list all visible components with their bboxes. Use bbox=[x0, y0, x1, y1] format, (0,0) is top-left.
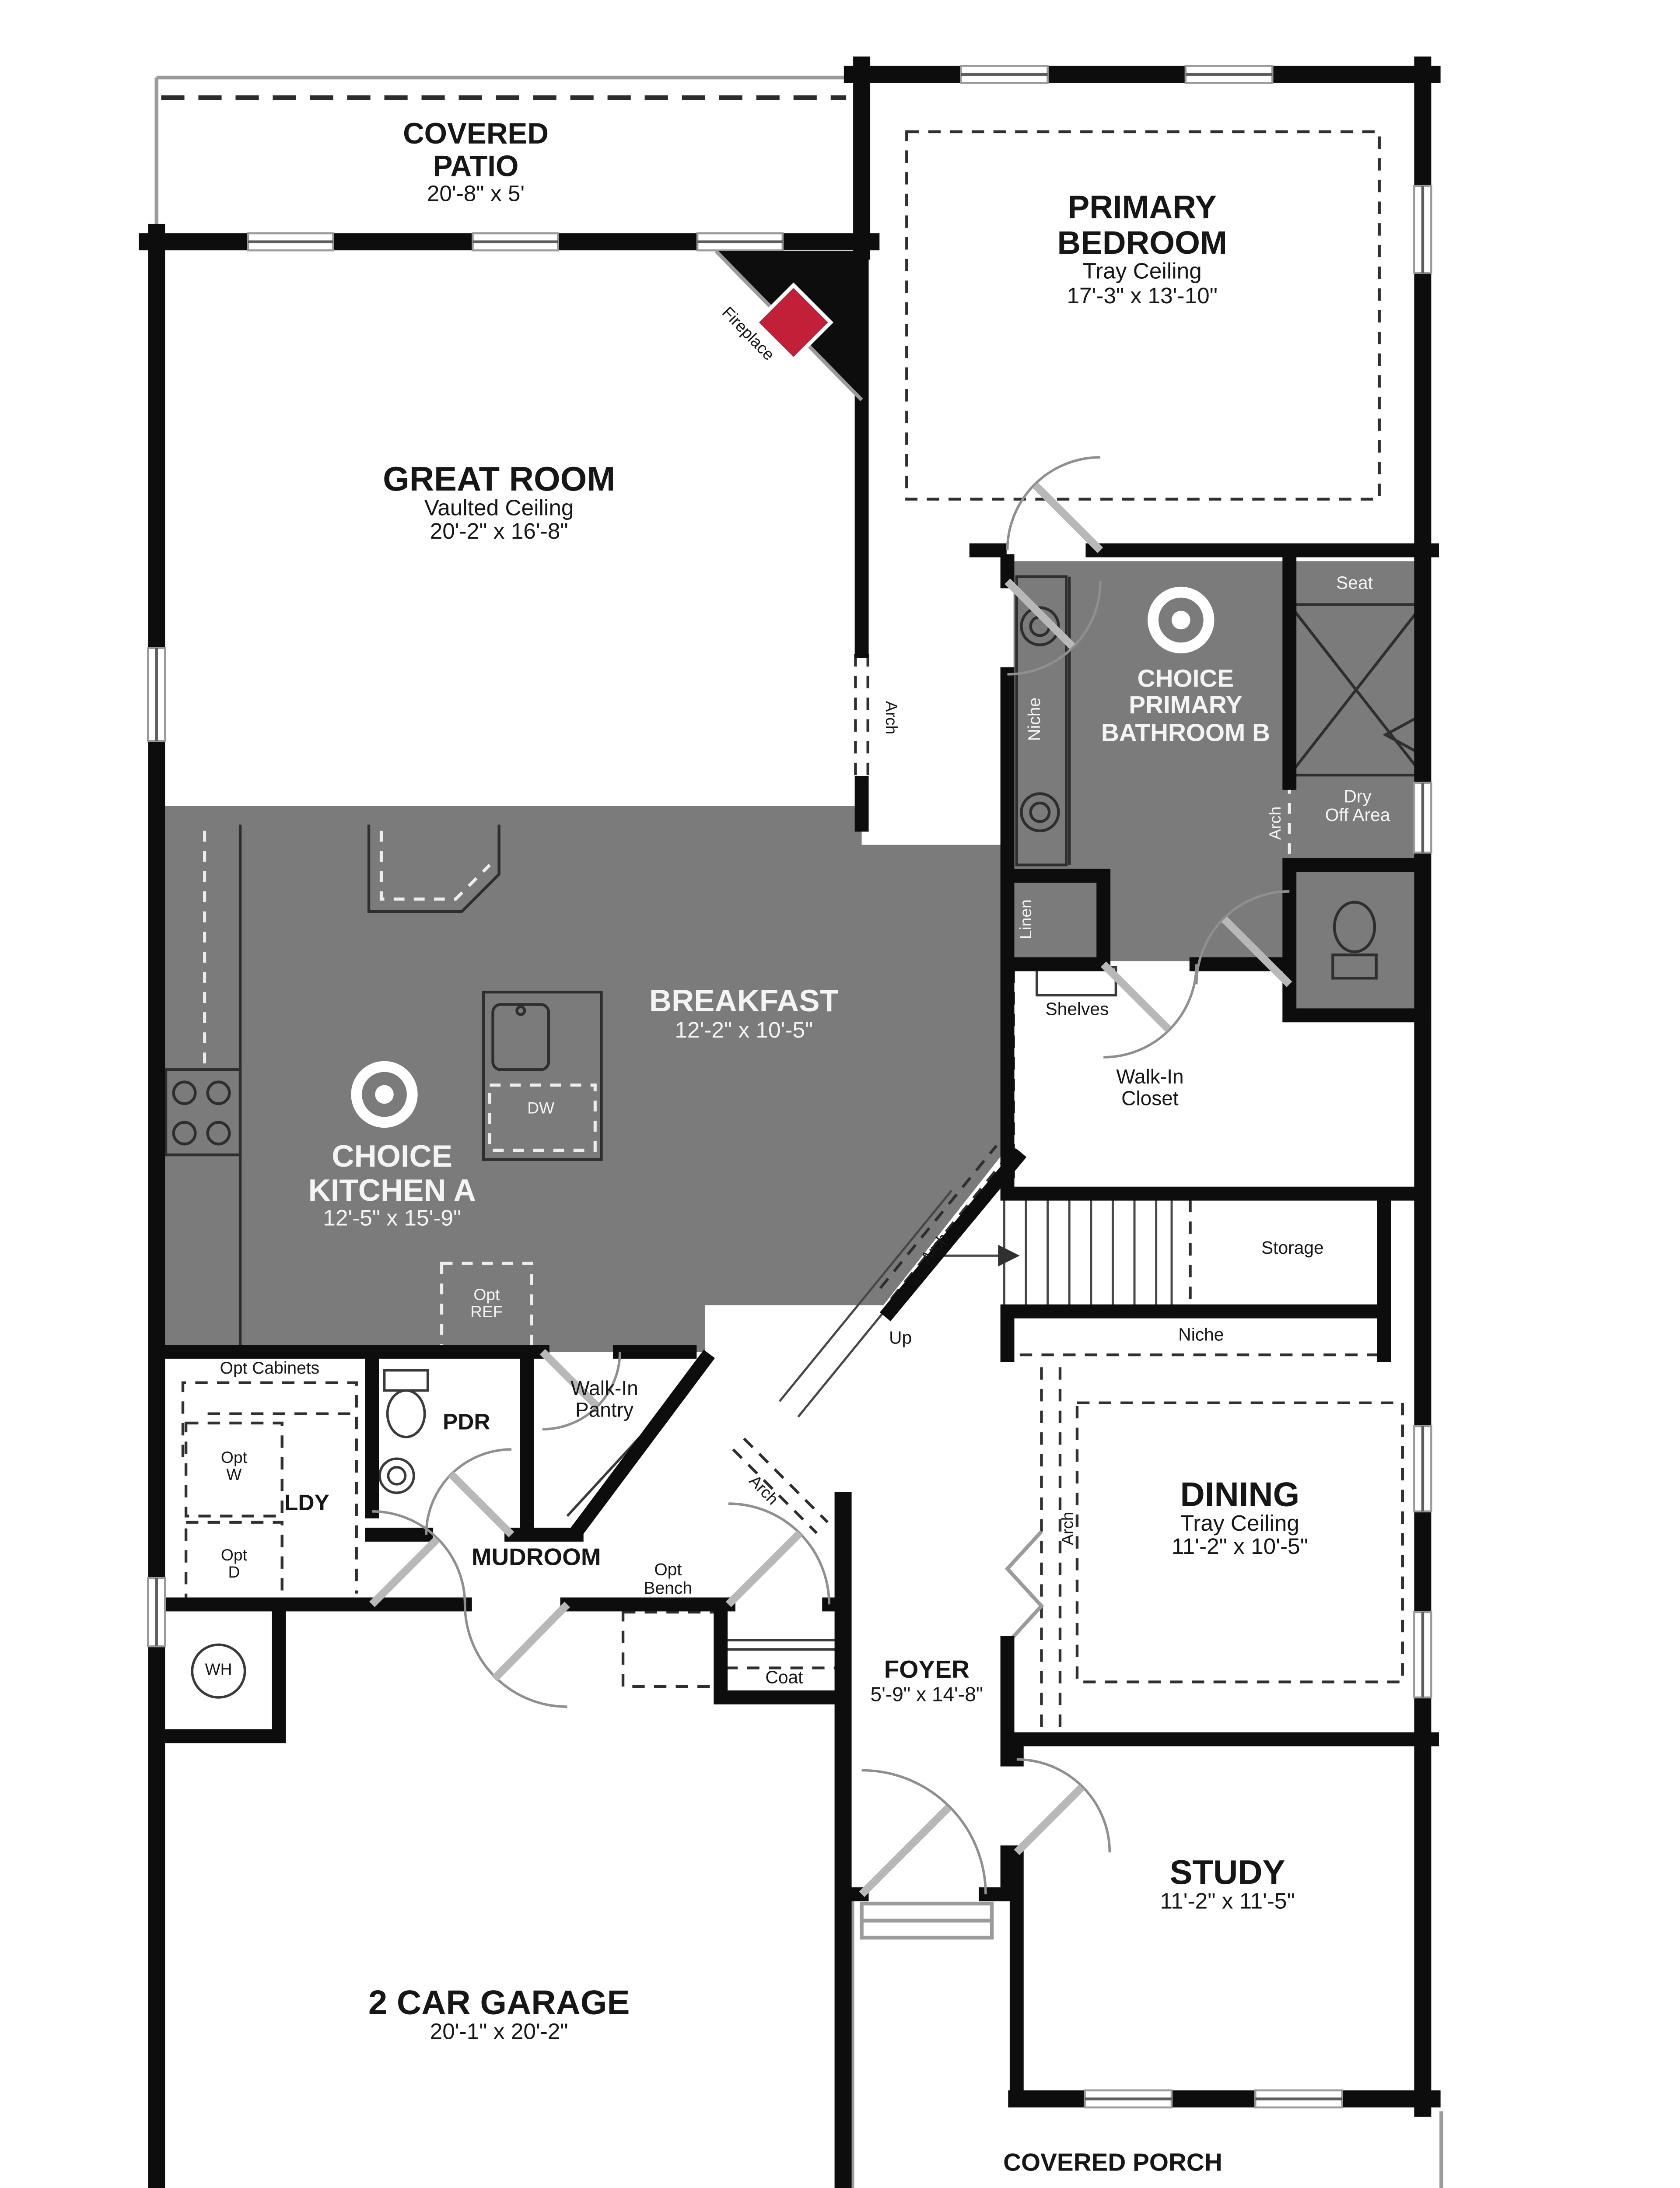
room-label-great-room: GREAT ROOM Vaulted Ceiling 20'-2" x 16'-… bbox=[383, 461, 615, 547]
arch-label-bath: Arch bbox=[1268, 806, 1286, 840]
room-label-garage: 2 CAR GARAGE 20'-1" x 20'-2" bbox=[368, 1985, 630, 2046]
coat-shelf bbox=[725, 1640, 840, 1649]
dining-arch-opening bbox=[1041, 1367, 1060, 1733]
dishwasher-label: DW bbox=[527, 1101, 554, 1119]
hall-arch-opening bbox=[855, 654, 868, 780]
room-label-foyer: FOYER 5'-9" x 14'-8" bbox=[871, 1658, 983, 1706]
room-label-study: STUDY 11'-2" x 11'-5" bbox=[1160, 1855, 1295, 1916]
arch-label-dining: Arch bbox=[1060, 1512, 1078, 1545]
porch-outline bbox=[852, 1894, 1441, 2188]
opt-bench-label: OptBench bbox=[644, 1563, 693, 1599]
opt-cabinets-label: Opt Cabinets bbox=[220, 1361, 319, 1379]
seat-label: Seat bbox=[1336, 575, 1373, 594]
pedestal-sink-icon bbox=[380, 1459, 414, 1493]
room-label-mudroom: MUDROOM bbox=[472, 1546, 601, 1572]
shelves-box bbox=[1037, 967, 1116, 995]
toilet-tank bbox=[385, 1370, 428, 1390]
pedestal-sink-icon bbox=[388, 1467, 405, 1484]
niche-label-dining: Niche bbox=[1178, 1327, 1224, 1346]
room-label-kitchen: CHOICE KITCHEN A 12'-5" x 15'-9" bbox=[308, 1142, 476, 1233]
room-label-walk-in-pantry: Walk-In Pantry bbox=[570, 1378, 638, 1421]
opt-ref-label: OptREF bbox=[470, 1288, 503, 1323]
storage-label: Storage bbox=[1261, 1240, 1324, 1259]
dry-off-area-label: DryOff Area bbox=[1325, 789, 1390, 827]
opt-bench-box bbox=[623, 1612, 716, 1687]
room-label-dining: DINING Tray Ceiling 11'-2" x 10'-5" bbox=[1172, 1476, 1308, 1562]
water-heater-label: WH bbox=[205, 1662, 232, 1680]
room-label-breakfast: BREAKFAST 12'-2" x 10'-5" bbox=[649, 986, 839, 1044]
up-arrow-head bbox=[998, 1245, 1020, 1267]
opt-cabinets-outline bbox=[183, 1383, 357, 1594]
room-label-walk-in-closet: Walk-In Closet bbox=[1116, 1066, 1183, 1110]
foyer-zigzag bbox=[1008, 1532, 1042, 1643]
kitchen-breakfast-region bbox=[157, 806, 1011, 1352]
floor-plan: COVERED PATIO 20'-8" x 5' GREAT ROOM Vau… bbox=[0, 0, 1680, 2188]
room-label-covered-patio: COVERED PATIO 20'-8" x 5' bbox=[403, 120, 549, 208]
opt-washer-label: OptW bbox=[221, 1451, 247, 1486]
coat-label: Coat bbox=[765, 1669, 803, 1688]
shelves-label: Shelves bbox=[1045, 1001, 1109, 1020]
opt-dryer-label: OptD bbox=[221, 1548, 247, 1583]
room-label-primary-bathroom: CHOICE PRIMARY BATHROOM B bbox=[1101, 667, 1270, 747]
niche-label-bath: Niche bbox=[1028, 698, 1046, 741]
room-label-primary-bedroom: PRIMARY BEDROOM Tray Ceiling 17'-3" x 13… bbox=[1057, 192, 1227, 311]
room-label-covered-porch: COVERED PORCH bbox=[1003, 2151, 1222, 2177]
up-label: Up bbox=[889, 1330, 912, 1349]
room-label-pdr: PDR bbox=[443, 1413, 490, 1437]
arch-label-hall: Arch bbox=[881, 701, 898, 734]
toilet-icon bbox=[388, 1391, 425, 1437]
floor-plan-page: COVERED PATIO 20'-8" x 5' GREAT ROOM Vau… bbox=[0, 0, 1680, 2188]
floor-plan-drawing bbox=[0, 0, 1680, 2188]
linen-label: Linen bbox=[1019, 899, 1036, 939]
bedroom-tray-ceiling bbox=[906, 132, 1379, 499]
room-label-ldy: LDY bbox=[284, 1493, 329, 1517]
